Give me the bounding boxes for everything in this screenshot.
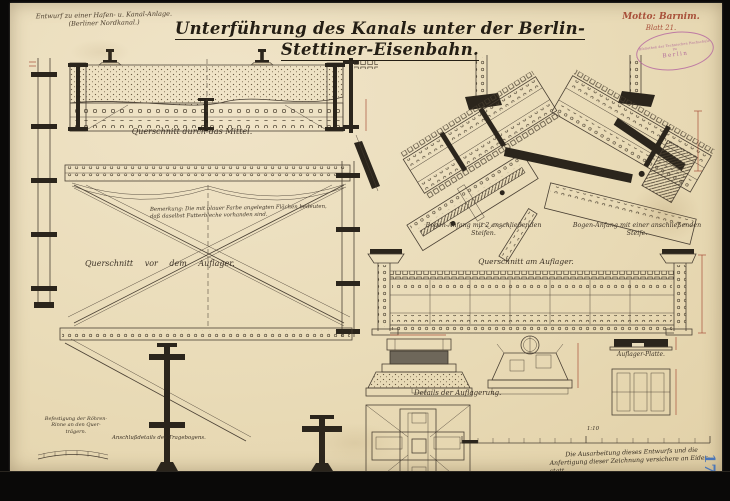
paper-sheet: Entwurf zu einer Hafen- u. Kanal-Anlage.… [10,3,722,471]
caption-pipe-fixing: Befestigung der Röhren- Rinne an den Que… [32,416,120,435]
drawing-cross-section-before-support [60,161,360,340]
drawing-lower-left-details [38,339,342,471]
caption-bearing-plate: Auflager-Platte. [600,351,682,359]
caption-arch-start-two: Bogen-Anfang mit 2 anschließenden Steife… [406,222,561,238]
caption-bearing-details: Details der Auflagerung. [414,389,544,398]
caption-arch-start-one: Bogen-Anfang mit einer anschließenden St… [562,222,712,238]
drawing-anchor-plan [366,405,470,471]
scale-bar [460,436,710,444]
motto-text: Motto: Barnim. [608,12,714,23]
scanned-drawing-sheet: { "header": { "project_line1": "Entwurf … [0,0,730,500]
scale-label: 1:10 [568,426,618,433]
scan-border-bottom [0,471,730,501]
sheet-number: Blatt 21. [608,24,714,33]
caption-cross-section-mid: Querschnitt durch das Mittel. [102,127,282,137]
sheet-title: Unterführung des Kanals unter der Berlin… [140,19,620,60]
caption-cross-section-at-support: Querschnitt am Auflager. [446,257,606,266]
stamp-center-text: Berlin [662,50,689,60]
caption-cross-section-before-support: Querschnitt vor dem Auflager. [85,259,300,269]
drawing-bearing-details [366,335,676,415]
caption-arch-connection: Anschlußdetails des Tragebogens. [112,435,237,442]
